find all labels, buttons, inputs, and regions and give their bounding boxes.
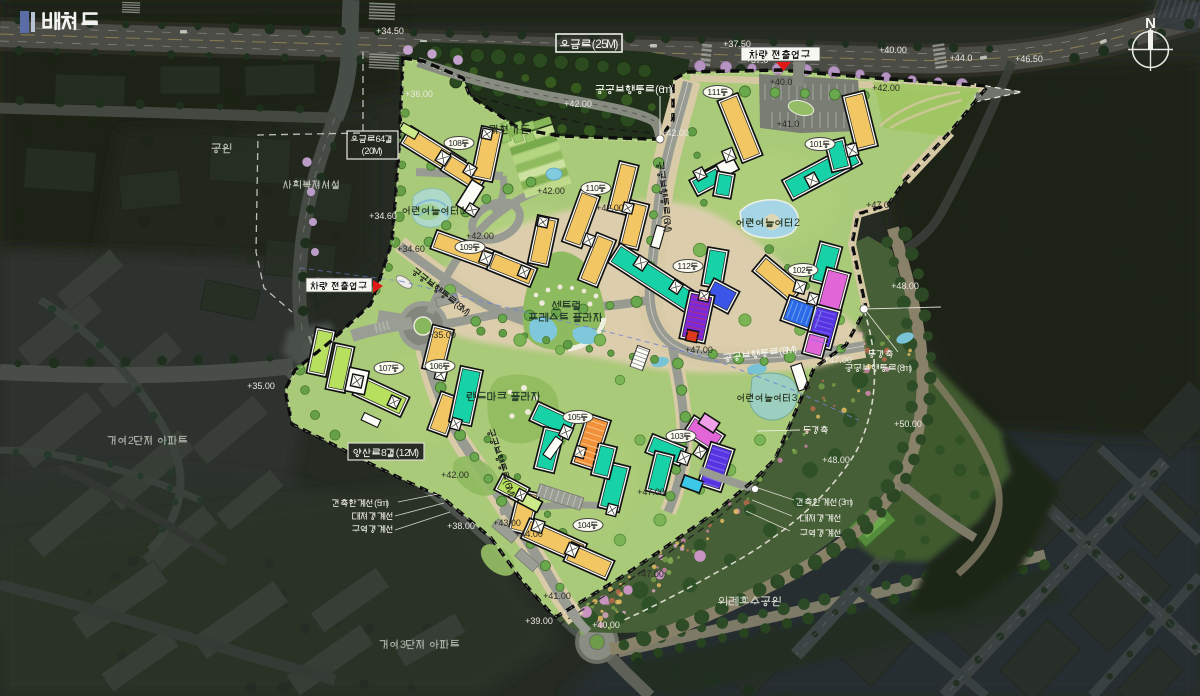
svg-text:+46.50: +46.50 [1015,54,1043,64]
svg-text:1: 1 [818,139,823,149]
svg-text:+50.00: +50.00 [894,419,922,429]
svg-text:): ) [850,497,853,507]
svg-text:+47.00: +47.00 [637,487,665,497]
svg-text:): ) [669,84,673,96]
svg-text:+34.50: +34.50 [376,26,404,36]
svg-text:2: 2 [801,265,806,275]
svg-text:8: 8 [381,448,387,459]
svg-text:+36.00: +36.00 [405,89,433,99]
svg-text:+40.00: +40.00 [592,620,620,630]
svg-text:+42.00: +42.00 [872,83,900,93]
svg-text:+42.00: +42.00 [661,128,689,138]
svg-text:+35.00: +35.00 [428,330,456,340]
svg-text:+47.00: +47.00 [685,345,713,355]
svg-text:+40.00: +40.00 [879,45,907,55]
svg-text:+42.00: +42.00 [441,470,469,480]
svg-text:+35.00: +35.00 [247,381,275,391]
svg-text:3: 3 [792,393,798,404]
svg-text:+44.00: +44.00 [515,529,543,539]
svg-text:1: 1 [716,87,721,97]
svg-text:3: 3 [400,639,406,651]
svg-text:+40.0: +40.0 [770,77,793,87]
svg-text:+47.00: +47.00 [636,569,664,579]
svg-text:+37.0: +37.0 [746,55,769,65]
svg-text:1: 1 [460,205,466,217]
svg-text:): ) [386,498,389,508]
svg-text:): ) [416,448,419,459]
svg-text:+43.00: +43.00 [493,518,521,528]
svg-text:9: 9 [468,242,473,252]
svg-text:N: N [1145,15,1156,32]
svg-text:8: 8 [457,138,462,148]
svg-text:): ) [379,146,382,156]
svg-text:7: 7 [387,363,392,373]
svg-text:5: 5 [576,412,581,422]
svg-text:6: 6 [438,361,443,371]
svg-text:+42.00: +42.00 [564,99,592,109]
svg-text:2: 2 [128,435,134,447]
svg-text:+44.0: +44.0 [950,53,973,63]
svg-text:+48.00: +48.00 [891,281,919,291]
svg-text:+48.00: +48.00 [822,455,850,465]
svg-text:4: 4 [586,520,591,530]
svg-text:+34.60: +34.60 [397,244,425,254]
svg-text:+47.00: +47.00 [866,200,894,210]
svg-text:3: 3 [679,431,684,441]
svg-text:+41.00: +41.00 [543,591,571,601]
svg-text:): ) [614,38,618,51]
svg-text:+38.00: +38.00 [447,521,475,531]
svg-text:+41.0: +41.0 [777,119,800,129]
svg-text:+42.00: +42.00 [596,203,624,213]
svg-text:2: 2 [794,217,800,229]
svg-text:4: 4 [380,134,385,144]
svg-text:+47.00: +47.00 [824,355,852,365]
svg-text:+42.00: +42.00 [466,231,494,241]
svg-text:): ) [909,363,912,374]
svg-text:+42.00: +42.00 [537,186,565,196]
svg-text:+34.60: +34.60 [369,211,397,221]
svg-text:0: 0 [594,183,599,193]
svg-text:2: 2 [686,261,691,271]
svg-text:+37.50: +37.50 [723,39,751,49]
svg-text:+39.00: +39.00 [525,616,553,626]
